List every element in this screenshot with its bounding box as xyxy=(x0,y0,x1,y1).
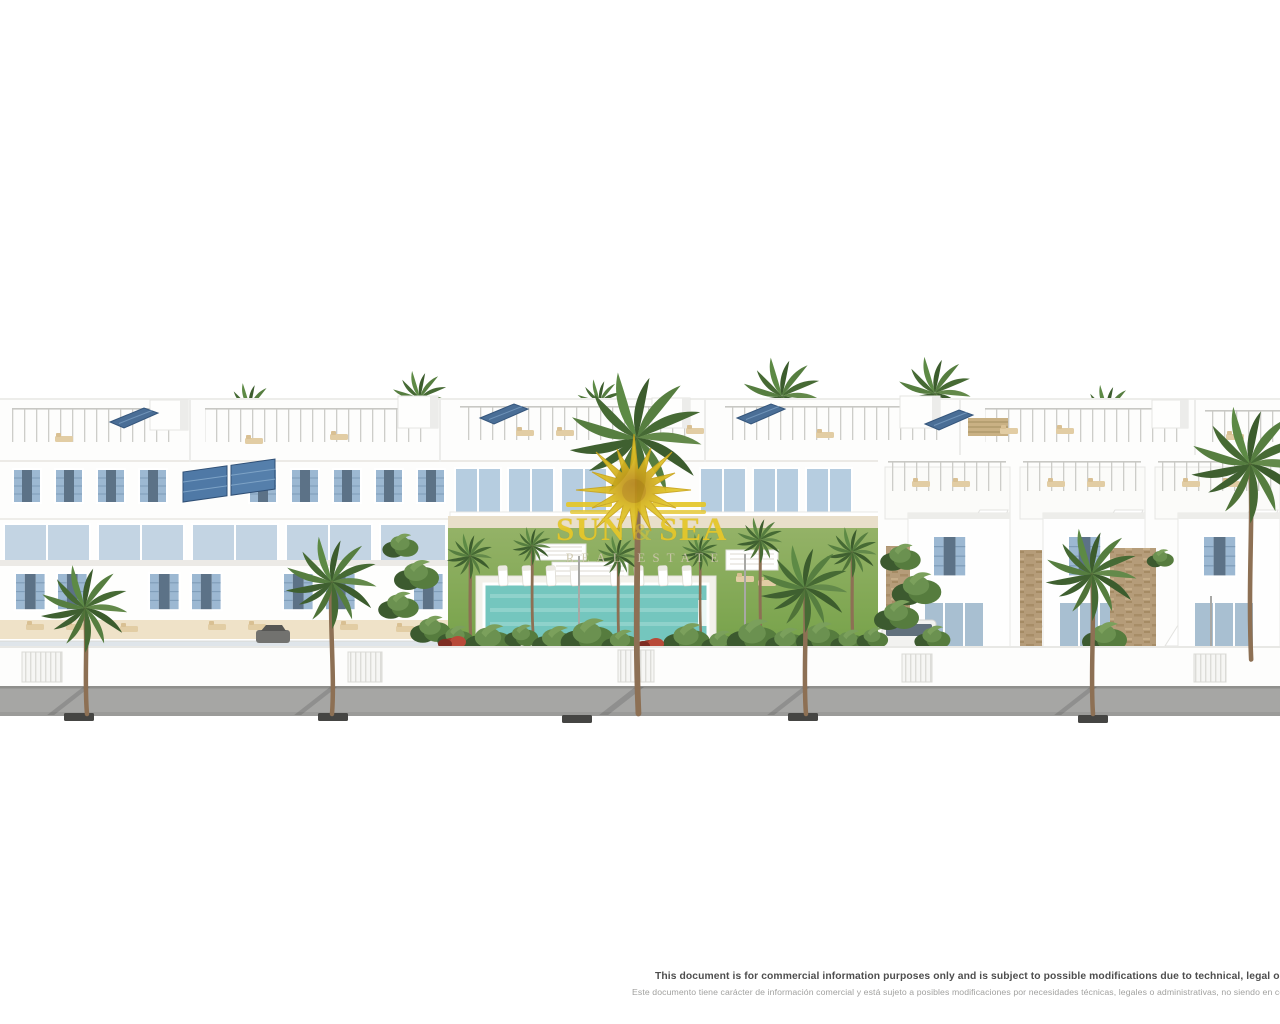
scene-svg xyxy=(0,0,1280,1024)
watermark-title: SUN & SEA xyxy=(556,514,728,547)
stone-wall xyxy=(1020,550,1042,656)
disclaimer-spanish: Este documento tiene carácter de informa… xyxy=(632,987,1280,997)
architectural-rendering: SUN & SEA REAL ESTATE This document is f… xyxy=(0,0,1280,1024)
watermark-tagline: REAL ESTATE xyxy=(546,550,738,566)
watermark-word-sun: SUN xyxy=(556,514,627,547)
balcony-glazing xyxy=(4,524,446,562)
watermark-ampersand: & xyxy=(632,521,654,545)
watermark-word-sea: SEA xyxy=(659,514,728,547)
sun-core-icon xyxy=(622,479,646,503)
disclaimer-english: This document is for commercial informat… xyxy=(655,971,1280,982)
